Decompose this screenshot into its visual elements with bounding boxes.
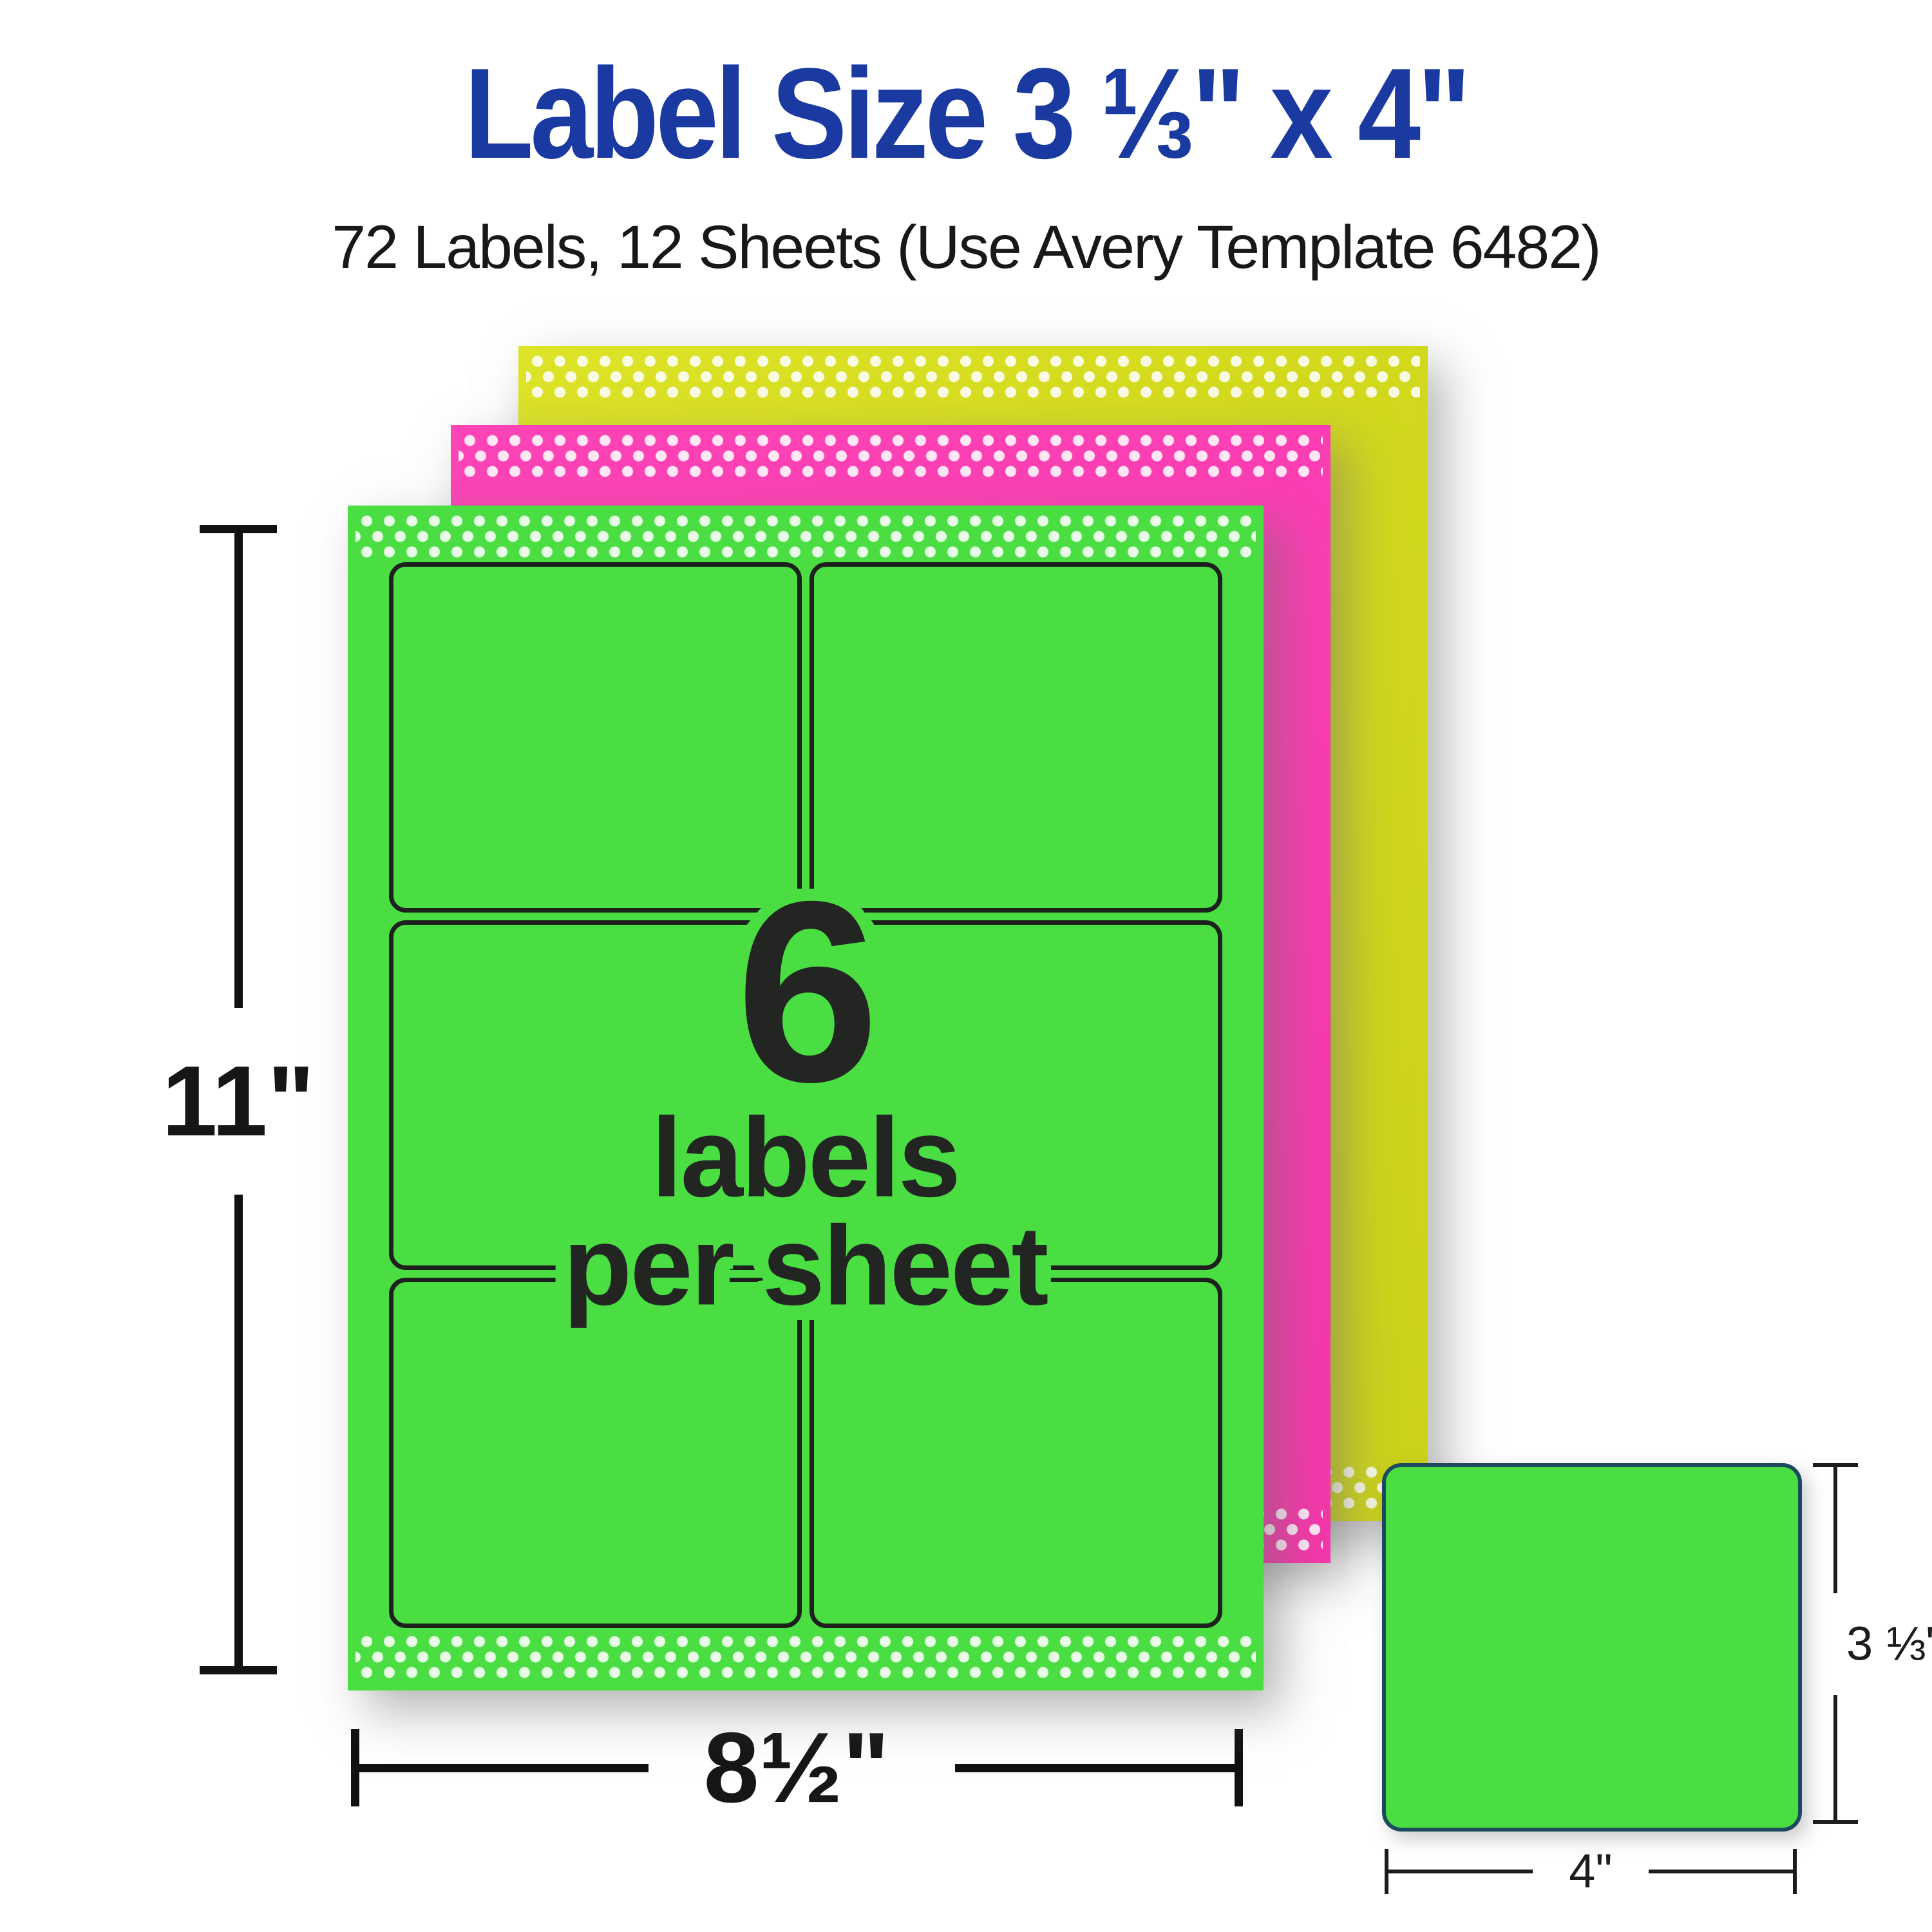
sheet-height-label: 11" [162, 1044, 314, 1159]
sheet-width-dimension-line: 8½" [351, 1729, 1243, 1806]
green-sheet: 6 labels per sheet [348, 506, 1264, 1690]
dimension-cap-top [200, 525, 277, 533]
labels-count: 6 [736, 863, 874, 1121]
dimension-line-segment [234, 533, 243, 1008]
dimension-line-segment [1388, 1870, 1533, 1873]
labels-text-line1: labels [651, 1102, 959, 1215]
label-width-dimension-line: 4" [1385, 1849, 1797, 1894]
page-background: { "header": { "title": "Label Size 3 ⅓\"… [0, 0, 1932, 1932]
dimension-cap-bottom [200, 1666, 277, 1674]
dot-band-top [459, 434, 1323, 480]
dimension-line-segment [1833, 1467, 1837, 1593]
page-title: Label Size 3 ⅓" x 4" [116, 40, 1816, 188]
dot-band-top [355, 515, 1256, 561]
sheet-height-dimension-line: 11" [200, 525, 277, 1674]
label-cell [810, 1278, 1222, 1628]
dimension-line-segment [955, 1764, 1235, 1772]
dimension-cap-left [351, 1729, 359, 1806]
single-label-swatch [1382, 1463, 1802, 1832]
dimension-line-segment [359, 1764, 649, 1772]
dimension-cap-right [1235, 1729, 1243, 1806]
dot-band-top [526, 355, 1420, 401]
label-cell [389, 1278, 802, 1628]
dimension-line-segment [234, 1195, 243, 1666]
dimension-cap-bottom [1813, 1820, 1858, 1824]
dimension-line-segment [1649, 1870, 1793, 1873]
label-height-dimension-line: 3 ⅓" [1813, 1463, 1858, 1824]
dimension-cap-right [1793, 1849, 1797, 1894]
dot-band-bottom [355, 1635, 1256, 1681]
labels-text-line2: per sheet [563, 1210, 1046, 1323]
label-width-label: 4" [1569, 1844, 1612, 1899]
sheet-width-label: 8½" [704, 1710, 890, 1825]
label-height-label: 3 ⅓" [1846, 1616, 1932, 1671]
page-subtitle: 72 Labels, 12 Sheets (Use Avery Template… [0, 213, 1932, 283]
dimension-line-segment [1833, 1695, 1837, 1820]
